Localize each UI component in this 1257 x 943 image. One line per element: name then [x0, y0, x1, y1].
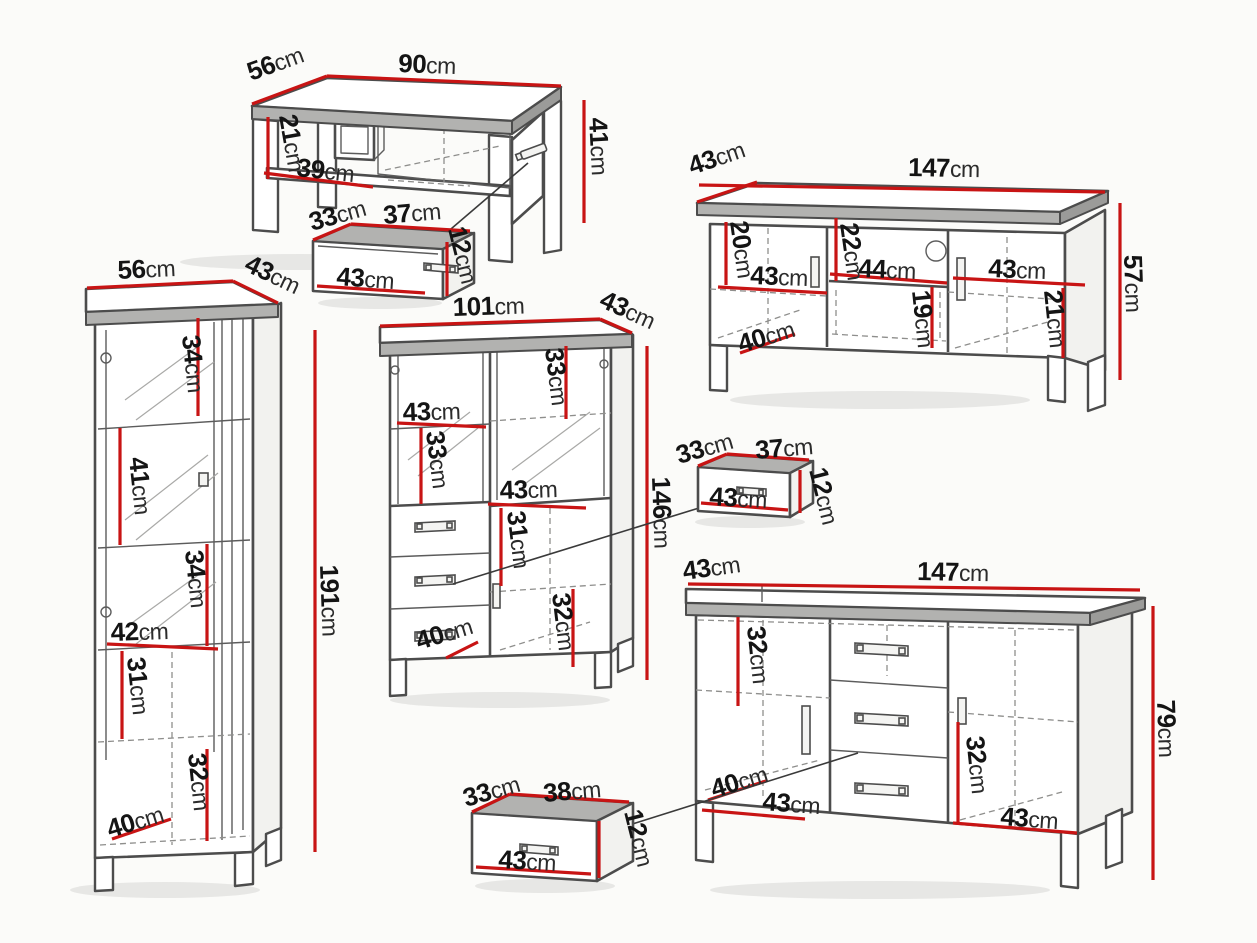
dim-sideboard-depth: 43cm: [681, 548, 742, 586]
dim-vitrine-width: 56cm: [117, 252, 176, 285]
dim-cabinet-mid-width: 43cm: [499, 473, 558, 505]
dim-tv-stand-left-door-width: 43cm: [750, 260, 809, 292]
dim-vitrine-inner-width: 42cm: [110, 615, 169, 647]
dim-coffee-table-width: 90cm: [398, 48, 457, 80]
dim-cabinet-width: 101cm: [452, 290, 525, 322]
dim-cabinet-height: 146cm: [646, 476, 678, 549]
dim-coffee-table-depth: 56cm: [243, 39, 307, 87]
dim-vitrine-height: 191cm: [314, 564, 346, 637]
dim-tv-stand-width: 147cm: [908, 152, 980, 183]
dim-sideboard-width: 147cm: [917, 556, 989, 587]
dim-tv-stand-niche-width: 44cm: [858, 253, 917, 285]
sideboard-right-door-handle-icon: [958, 698, 966, 724]
tv-stand-left-door-handle-icon: [811, 257, 819, 287]
furniture-dimension-diagram: 56cm 90cm 41cm 21cm 39cm 33cm 37cm 12cm …: [0, 0, 1257, 943]
dim-drawer-box-top-width: 37cm: [382, 195, 442, 230]
dim-tv-stand-depth: 43cm: [684, 134, 748, 181]
dim-tv-stand-right-door-width: 43cm: [988, 253, 1047, 285]
dim-drawer-box-bottom-front-width: 43cm: [498, 844, 557, 877]
dim-sideboard-height: 79cm: [1151, 699, 1183, 758]
dim-drawer-box-mid-front-width: 43cm: [709, 481, 768, 514]
vitrine-body: [95, 316, 253, 858]
dim-drawer-box-mid-height: 12cm: [803, 464, 846, 527]
diagram-canvas: 56cm 90cm 41cm 21cm 39cm 33cm 37cm 12cm …: [0, 0, 1257, 943]
cabinet-door-handle-icon: [493, 584, 500, 608]
dim-cabinet-left-door-width: 43cm: [402, 395, 461, 427]
dim-tv-stand-height: 57cm: [1118, 254, 1150, 313]
dim-coffee-table-height: 41cm: [583, 117, 616, 176]
sideboard-left-door-handle-icon: [802, 706, 810, 754]
vitrine-door-handle-icon: [199, 473, 208, 486]
